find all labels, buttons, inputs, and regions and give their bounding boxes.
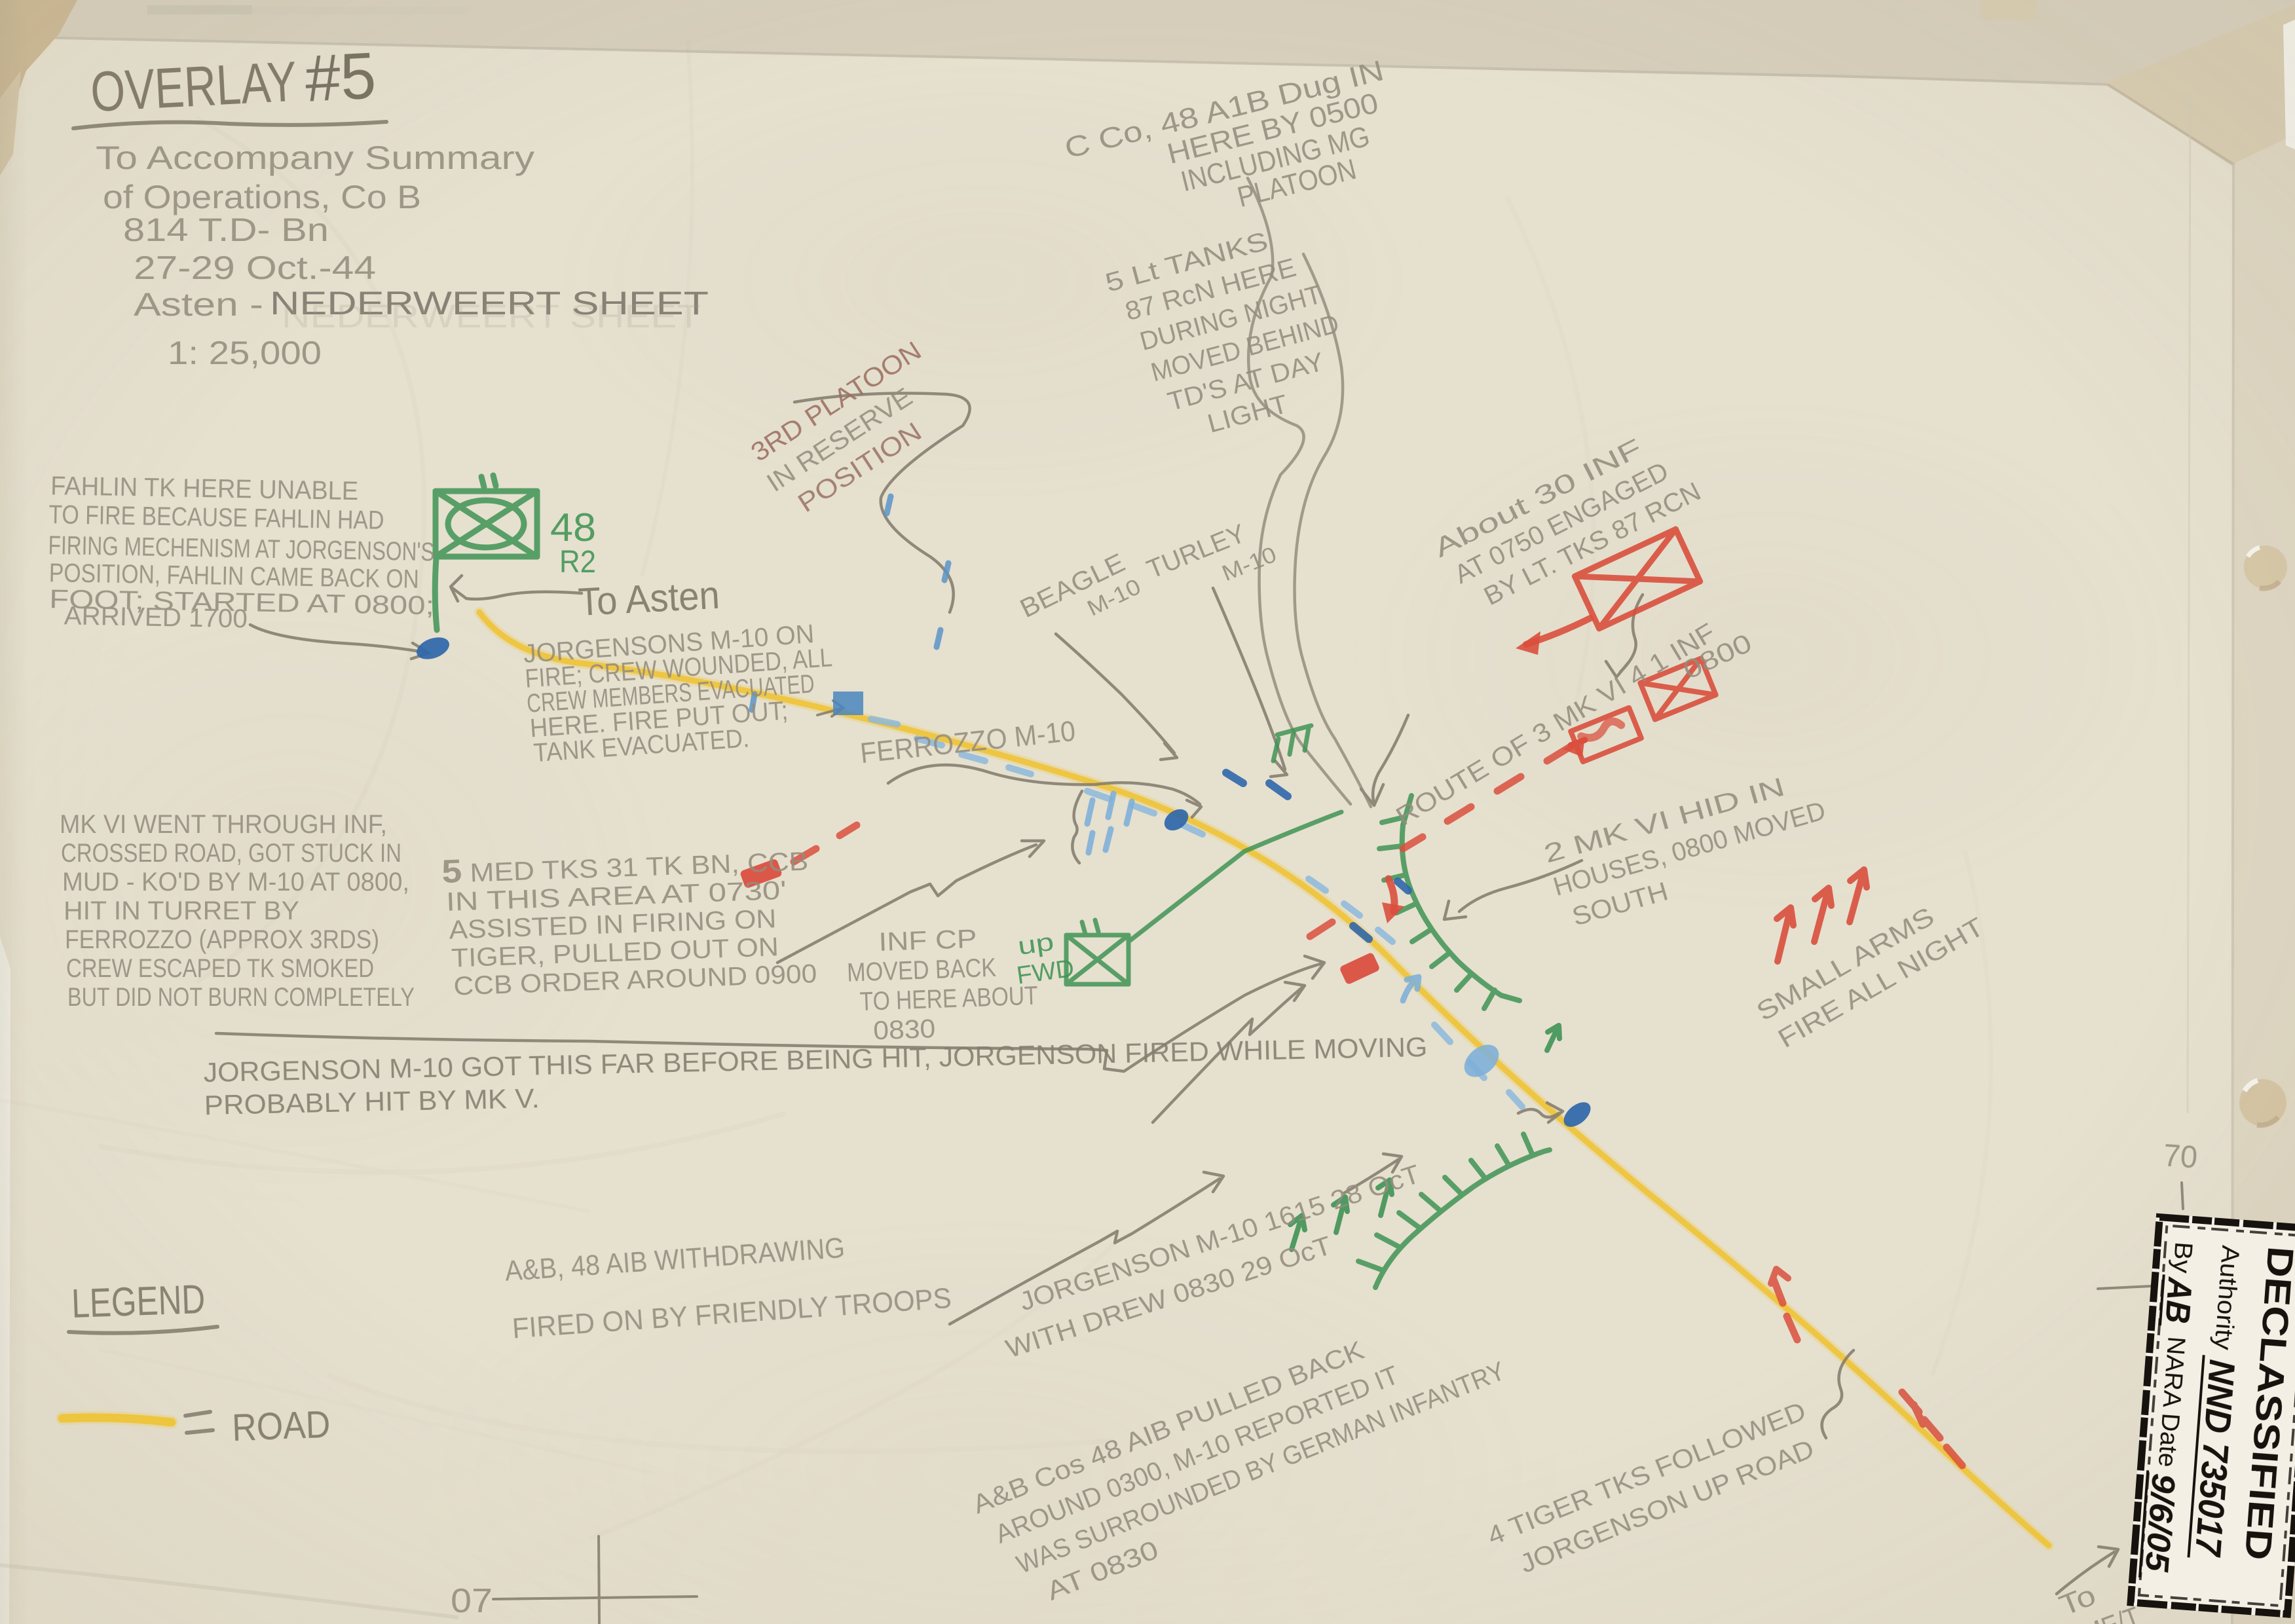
svg-text:CREW ESCAPED TK SMOKED: CREW ESCAPED TK SMOKED [66,954,374,983]
svg-text:INF CP: INF CP [878,925,977,957]
svg-text:BUT DID NOT BURN COMPLETELY: BUT DID NOT BURN COMPLETELY [67,983,415,1012]
svg-text:0830: 0830 [872,1014,935,1045]
svg-text:LEGEND: LEGEND [71,1277,206,1327]
svg-text:FERROZZO (APPROX 3RDS): FERROZZO (APPROX 3RDS) [65,925,379,954]
svg-text:TO FIRE BECAUSE FAHLIN HAD: TO FIRE BECAUSE FAHLIN HAD [48,500,384,535]
svg-text:R2: R2 [559,545,596,580]
svg-text:OVERLAY: OVERLAY [89,50,299,124]
svg-text:of Operations, Co B: of Operations, Co B [103,179,421,215]
svg-text:48: 48 [550,506,596,549]
svg-text:70: 70 [2162,1138,2199,1175]
svg-text:MOVED BACK: MOVED BACK [846,953,997,987]
svg-text:27-29 Oct.-44: 27-29 Oct.-44 [134,249,376,286]
svg-text:By: By [2167,1241,2197,1274]
svg-text:Asten -: Asten - [134,286,263,323]
svg-text:#5: #5 [303,39,378,115]
svg-text:HIT IN TURRET BY: HIT IN TURRET BY [64,896,299,925]
svg-text:MK VI WENT THROUGH INF,: MK VI WENT THROUGH INF, [60,810,387,839]
svg-text:CROSSED ROAD, GOT STUCK IN: CROSSED ROAD, GOT STUCK IN [61,839,401,868]
svg-text:up: up [1016,929,1055,961]
svg-text:To Accompany Summary: To Accompany Summary [96,139,534,176]
svg-text:NEDERWEERT SHEET: NEDERWEERT SHEET [282,298,701,335]
svg-text:ROAD: ROAD [231,1403,331,1449]
svg-text:ARRIVED 1700: ARRIVED 1700 [64,601,248,633]
svg-text:To Asten: To Asten [577,573,720,624]
svg-text:1: 25,000: 1: 25,000 [168,335,322,371]
svg-text:07: 07 [451,1582,493,1620]
svg-text:MUD - KO'D BY M-10 AT 0800,: MUD - KO'D BY M-10 AT 0800, [62,868,409,896]
svg-text:814 T.D- Bn: 814 T.D- Bn [123,212,329,248]
